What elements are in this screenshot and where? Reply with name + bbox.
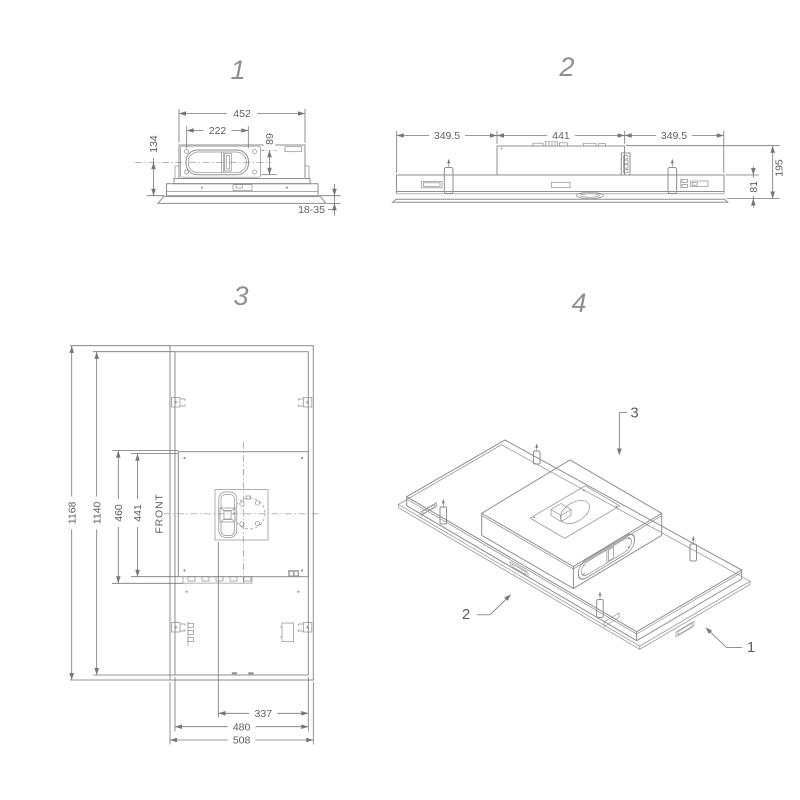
svg-text:3: 3 xyxy=(630,405,638,422)
svg-text:1: 1 xyxy=(747,639,755,656)
view4-label: 4 xyxy=(571,288,586,318)
view-4-isometric: 4 xyxy=(398,288,755,656)
callout-1: 1 xyxy=(704,626,755,656)
mounting-clip xyxy=(298,398,312,408)
technical-drawing: 1 xyxy=(0,0,800,800)
svg-text:134: 134 xyxy=(148,135,160,153)
view-3-plan-view: 3 xyxy=(66,281,320,747)
view3-label: 3 xyxy=(233,281,248,311)
dim-480: 480 xyxy=(175,677,308,733)
mounting-clip xyxy=(172,623,186,633)
hanger-bolt xyxy=(534,444,541,465)
view1-hood-body xyxy=(135,145,326,203)
isometric-unit xyxy=(398,440,750,649)
dim-top-spans: 349.5 441 349.5 xyxy=(397,130,724,173)
view2-hood-body xyxy=(393,141,728,202)
hanger-bolt-right xyxy=(668,159,677,194)
view2-label: 2 xyxy=(558,52,574,82)
ceiling-panel-edge xyxy=(393,199,728,202)
svg-text:441: 441 xyxy=(132,504,144,522)
installation-drawing-page: 1 xyxy=(0,0,800,800)
dim-441-center: 441 xyxy=(552,130,570,142)
side-bracket xyxy=(681,179,708,189)
dim-195: 195 xyxy=(626,146,786,199)
view-2-side-elevation: 2 xyxy=(393,52,786,208)
svg-text:1140: 1140 xyxy=(91,501,103,524)
view-1-front-elevation: 1 xyxy=(135,55,341,218)
ceiling-panel-edge xyxy=(158,197,326,204)
svg-text:460: 460 xyxy=(113,504,125,522)
dim-81: 81 xyxy=(726,167,761,208)
terminal-strip xyxy=(183,577,252,583)
svg-text:195: 195 xyxy=(774,159,786,177)
hanger-bolt-left xyxy=(444,159,453,194)
view1-label: 1 xyxy=(230,55,245,85)
dim-349-5-right: 349.5 xyxy=(661,130,687,142)
svg-text:222: 222 xyxy=(209,125,227,137)
fan-plate xyxy=(530,486,620,539)
mounting-clip xyxy=(172,398,186,408)
dim-508: 508 xyxy=(170,682,313,747)
motor-box xyxy=(497,146,625,175)
motor-connection-detail xyxy=(215,490,268,541)
dim-452: 452 xyxy=(179,108,305,143)
dim-349-5-left: 349.5 xyxy=(434,130,460,142)
junction-box xyxy=(280,623,294,642)
svg-text:89: 89 xyxy=(264,133,276,145)
svg-text:1168: 1168 xyxy=(66,501,78,524)
svg-text:FRONT: FRONT xyxy=(154,493,166,533)
svg-text:452: 452 xyxy=(233,108,251,120)
svg-text:508: 508 xyxy=(233,735,251,747)
view3-body xyxy=(163,346,320,680)
edge-bracket xyxy=(188,622,194,647)
front-label: FRONT xyxy=(154,493,166,533)
mounting-clip xyxy=(298,623,312,633)
svg-text:2: 2 xyxy=(462,606,470,623)
dim-89: 89 xyxy=(262,128,277,175)
callout-3: 3 xyxy=(617,405,639,456)
svg-text:18-35: 18-35 xyxy=(298,204,325,216)
svg-text:480: 480 xyxy=(233,721,251,733)
dim-134: 134 xyxy=(147,130,165,196)
dim-460: 460 xyxy=(112,450,183,583)
svg-text:81: 81 xyxy=(748,181,760,193)
svg-text:337: 337 xyxy=(255,708,273,720)
callout-2: 2 xyxy=(462,593,513,623)
duct-flange-side xyxy=(621,153,630,175)
connector xyxy=(289,571,299,577)
